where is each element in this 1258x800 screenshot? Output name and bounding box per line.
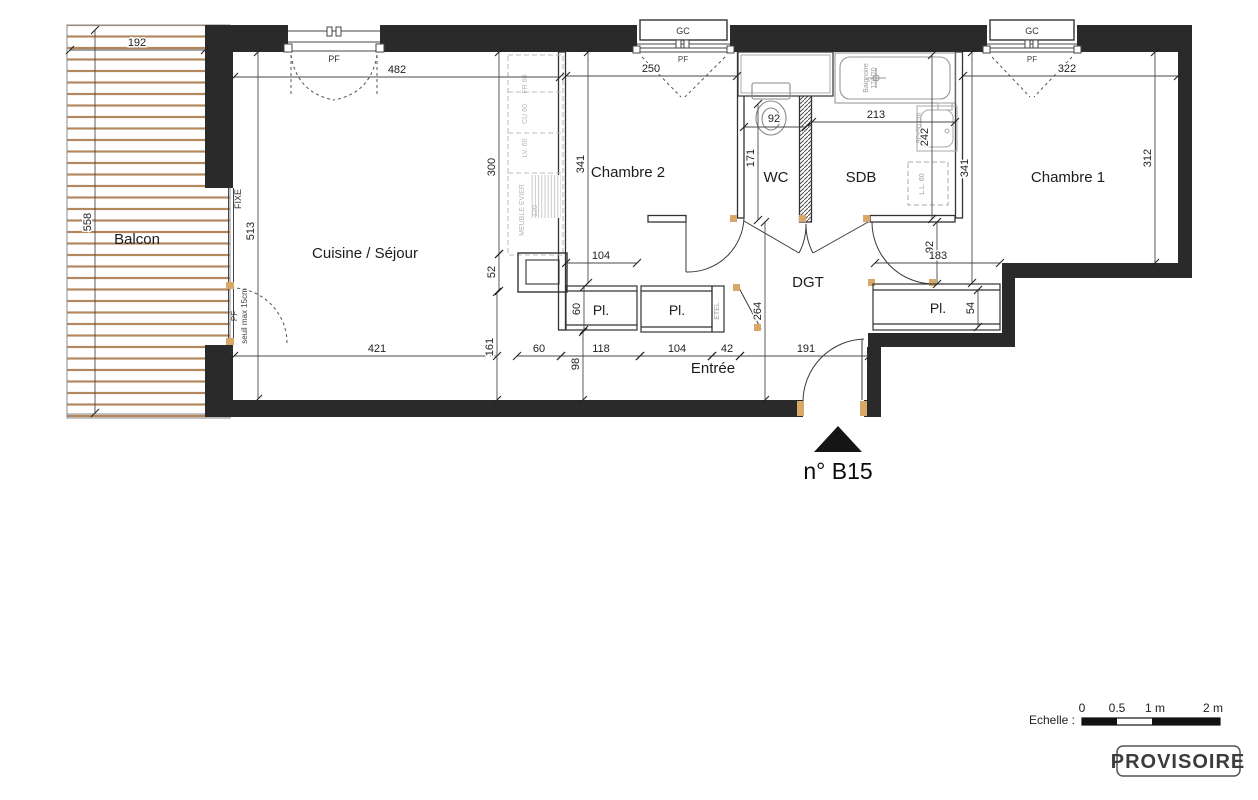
floor-plan-drawing: Balcon Cuisine / Séjour Chambre 2 WC SDB… bbox=[0, 0, 1258, 800]
dimension-label: 104 bbox=[668, 343, 686, 355]
room-label-chambre2: Chambre 2 bbox=[591, 164, 665, 181]
room-label-wc: WC bbox=[764, 169, 789, 186]
bathtub-size-label: 170/70 bbox=[871, 67, 878, 89]
dimension-label: 60 bbox=[533, 343, 545, 355]
dimension-label: 42 bbox=[721, 343, 733, 355]
dimension-label: 250 bbox=[642, 63, 660, 75]
closet-label-1: Pl. bbox=[593, 302, 609, 318]
cooker-label: CU 60 bbox=[522, 104, 529, 124]
dimension-label: 183 bbox=[929, 250, 947, 262]
floor-plan-page: Balcon Cuisine / Séjour Chambre 2 WC SDB… bbox=[0, 0, 1258, 800]
dimension-label: 341 bbox=[575, 155, 587, 173]
dimension-label: 300 bbox=[486, 158, 498, 176]
dimension-label: 341 bbox=[959, 159, 971, 177]
dimension-label: 312 bbox=[1142, 149, 1154, 167]
stamp-text: PROVISOIRE bbox=[1111, 751, 1245, 773]
gc-label-chambre2: GC bbox=[676, 26, 690, 36]
dimension-label: 92 bbox=[768, 113, 780, 125]
dimension-label: 171 bbox=[745, 149, 757, 167]
dimension-label: 482 bbox=[388, 64, 406, 76]
room-label-entree: Entrée bbox=[691, 360, 735, 377]
scale-tick-05: 0.5 bbox=[1109, 701, 1126, 715]
scale-bar: Echelle : 0 0.5 1 m 2 m bbox=[1029, 701, 1223, 727]
scale-label: Echelle : bbox=[1029, 713, 1075, 727]
pf-label-chambre2: PF bbox=[678, 55, 688, 64]
dimension-label: 264 bbox=[752, 302, 764, 320]
dimension-label: 192 bbox=[128, 37, 146, 49]
pf-label-cuisine: PF bbox=[328, 54, 340, 64]
dimension-label: 54 bbox=[965, 302, 977, 314]
bathtub bbox=[835, 53, 955, 103]
dimension-label: 104 bbox=[592, 250, 610, 262]
sdb-door-leaf bbox=[813, 221, 870, 253]
seuil-label: seuil max 15cm bbox=[240, 288, 249, 344]
bathtub-label: Baignoire bbox=[863, 63, 870, 93]
pf-seuil-label: PF bbox=[230, 311, 239, 321]
washing-machine-label: L.L. 60 bbox=[919, 173, 926, 195]
fixe-label: FIXE bbox=[233, 189, 243, 209]
dimension-label: 60 bbox=[571, 303, 583, 315]
sdb-door-arc bbox=[806, 224, 813, 253]
dimension-label: 98 bbox=[570, 358, 582, 370]
wc-door-leaf bbox=[744, 221, 799, 253]
room-label-sdb: SDB bbox=[846, 169, 877, 186]
chambre2-door-arc bbox=[686, 218, 744, 272]
dimension-label: 322 bbox=[1058, 63, 1076, 75]
scale-tick-1m: 1 m bbox=[1145, 701, 1165, 715]
scale-tick-0: 0 bbox=[1079, 701, 1086, 715]
sink-unit-label: MEUBLE EVIER bbox=[519, 184, 526, 236]
unit-number: n° B15 bbox=[803, 458, 872, 484]
room-label-chambre1: Chambre 1 bbox=[1031, 169, 1105, 186]
dimension-label: 213 bbox=[867, 109, 885, 121]
washing-machine bbox=[908, 162, 948, 205]
kitchen-units bbox=[508, 55, 563, 255]
dimension-label: 52 bbox=[486, 266, 498, 278]
etel-label: ETEL bbox=[714, 302, 721, 320]
dimension-label: 421 bbox=[368, 343, 386, 355]
entrance-triangle-icon bbox=[814, 426, 862, 452]
dishwasher-label: LV. 60 bbox=[522, 138, 529, 157]
wc-door-arc bbox=[799, 224, 806, 253]
room-label-dgt: DGT bbox=[792, 274, 824, 291]
dimension-label: 118 bbox=[592, 343, 610, 355]
dimension-label: 513 bbox=[245, 222, 257, 240]
dimension-label: 242 bbox=[919, 128, 931, 146]
gc-label-chambre1: GC bbox=[1025, 26, 1039, 36]
room-label-balcon: Balcon bbox=[114, 231, 160, 248]
closet-label-2: Pl. bbox=[669, 302, 685, 318]
dimension-label: 161 bbox=[484, 338, 496, 356]
dimension-label: 191 bbox=[797, 343, 815, 355]
closet-label-3: Pl. bbox=[930, 300, 946, 316]
room-label-cuisine-sejour: Cuisine / Séjour bbox=[312, 245, 418, 262]
pf-label-chambre1: PF bbox=[1027, 55, 1037, 64]
scale-tick-2m: 2 m bbox=[1203, 701, 1223, 715]
sink-unit-size-label: 120 bbox=[532, 205, 539, 217]
provisional-stamp: PROVISOIRE bbox=[1111, 746, 1245, 776]
dimension-label: 558 bbox=[82, 213, 94, 231]
